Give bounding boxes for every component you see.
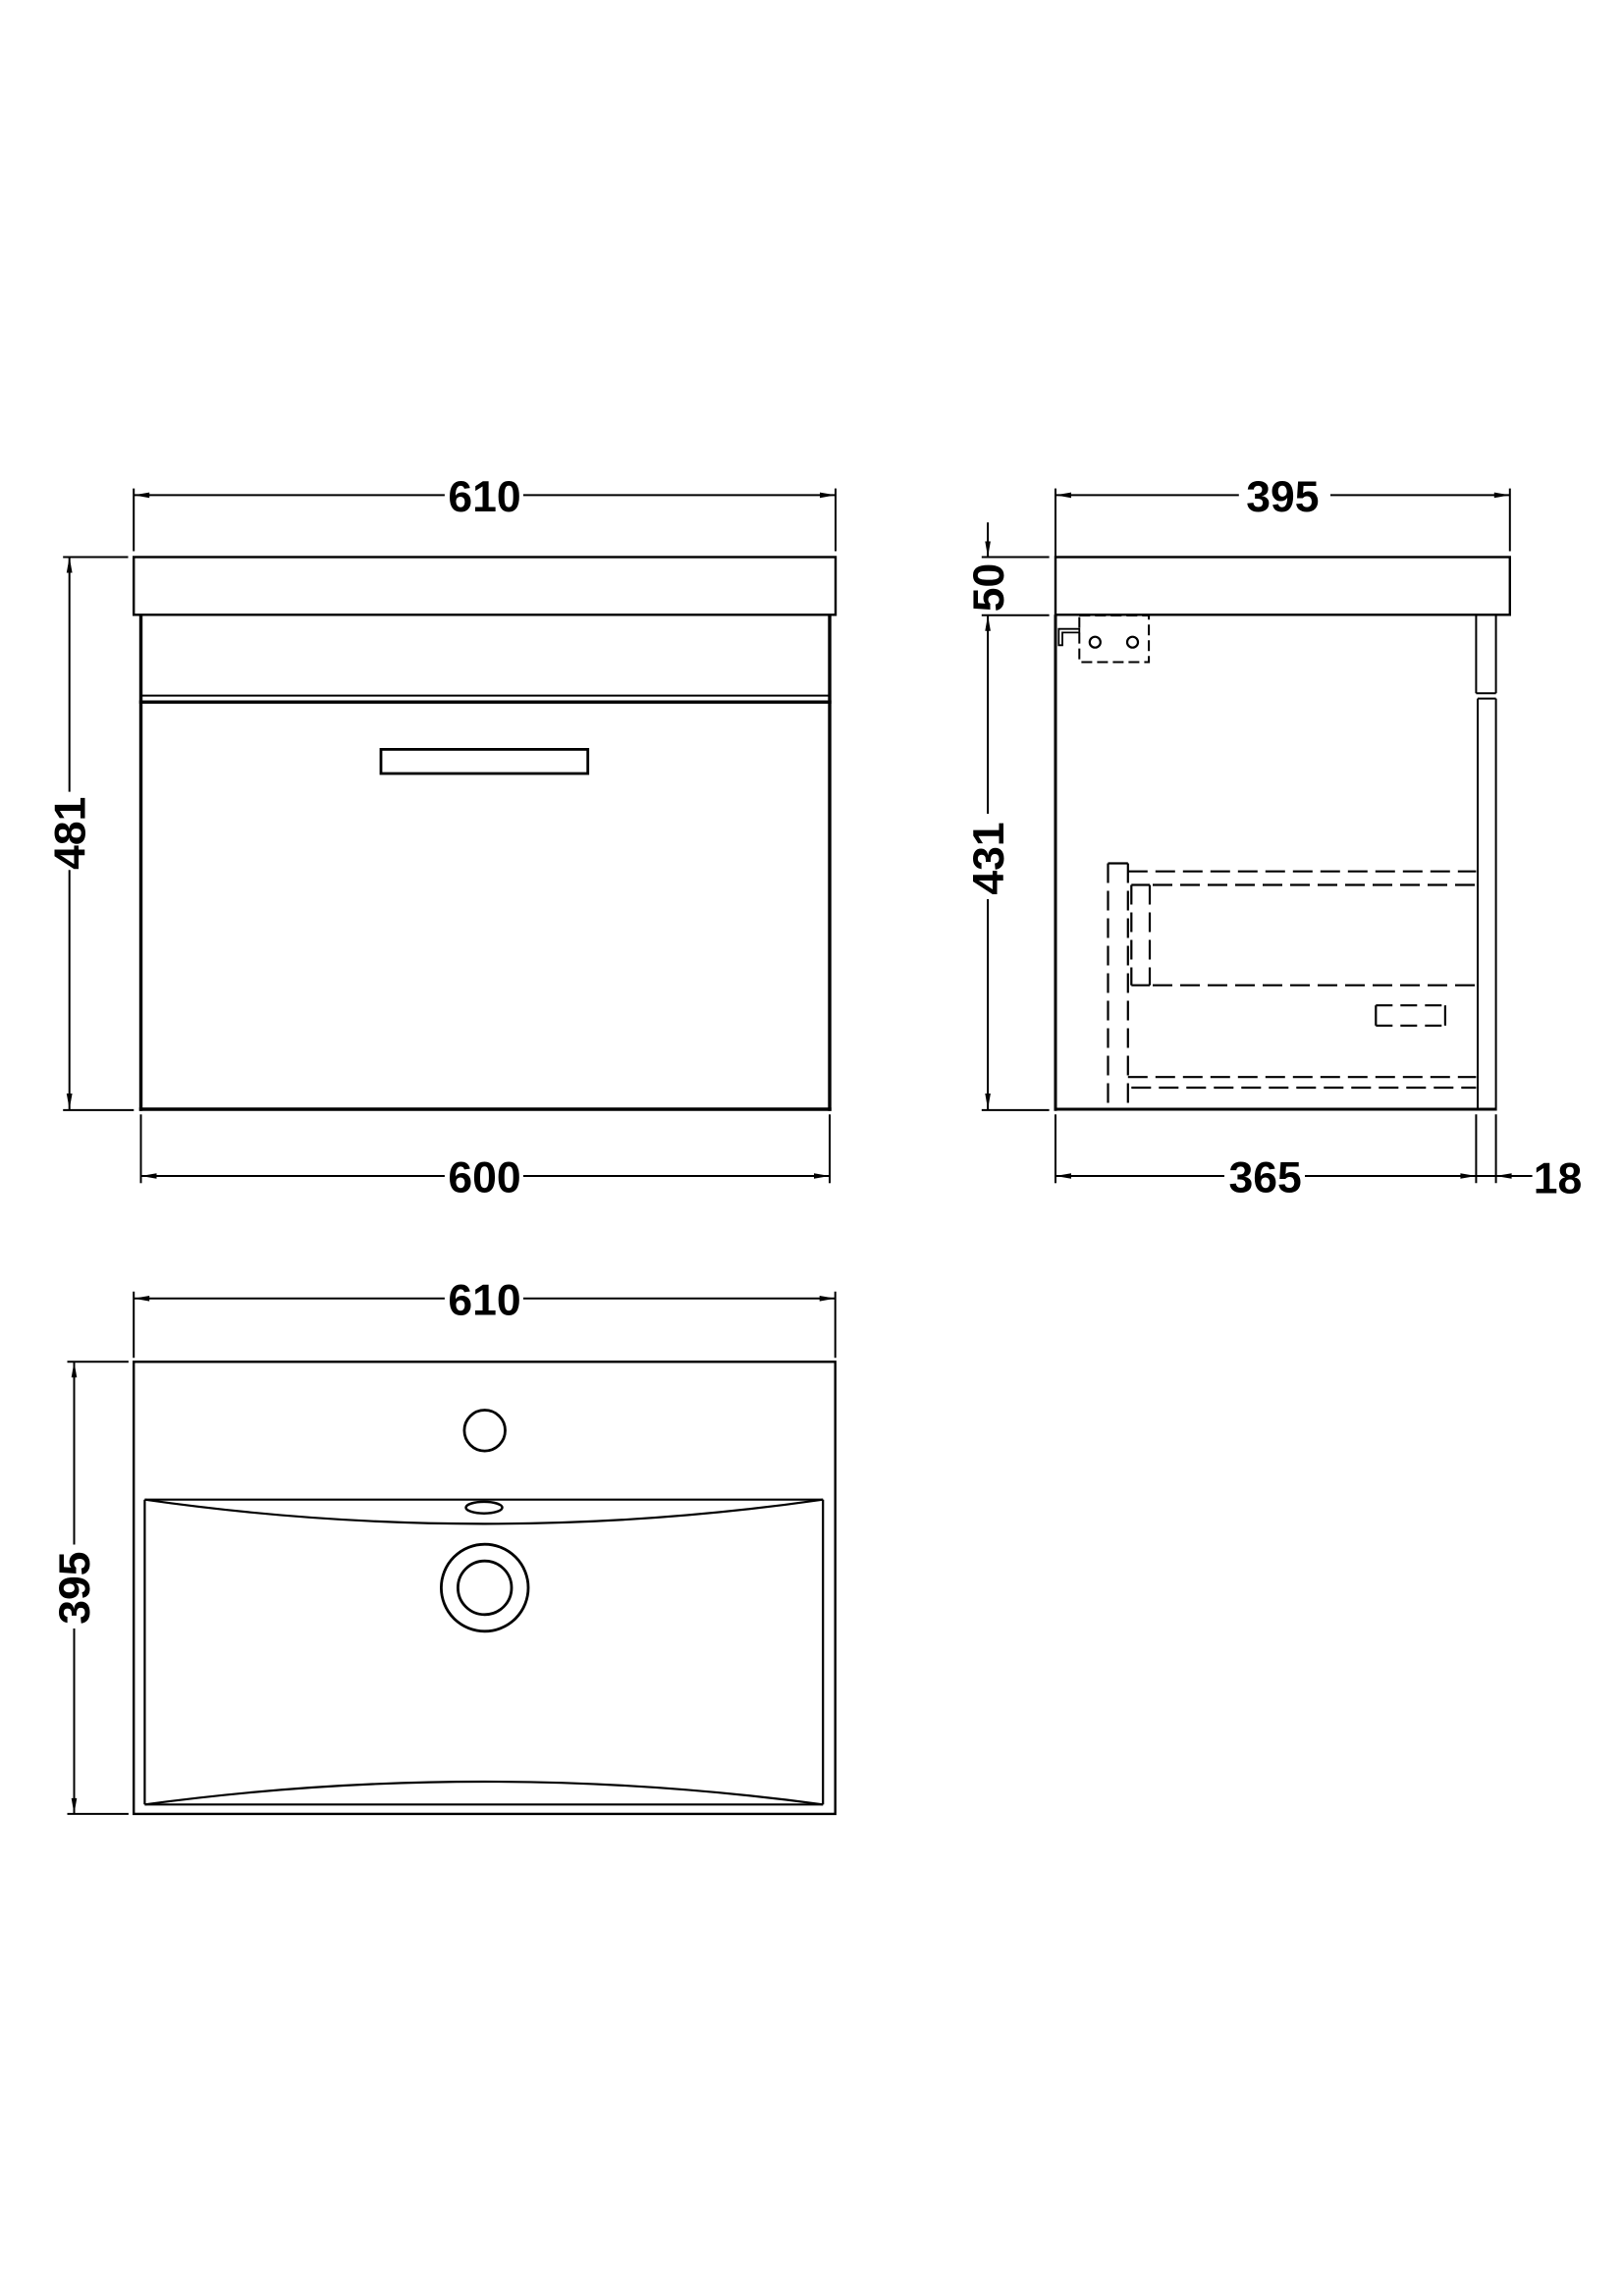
svg-text:431: 431 (965, 822, 1013, 894)
svg-text:50: 50 (965, 563, 1013, 613)
svg-text:395: 395 (51, 1551, 99, 1624)
svg-text:610: 610 (448, 1276, 520, 1324)
svg-text:395: 395 (1246, 473, 1319, 521)
svg-text:481: 481 (47, 797, 95, 870)
svg-text:600: 600 (448, 1154, 520, 1202)
svg-text:18: 18 (1534, 1155, 1583, 1203)
svg-text:610: 610 (448, 473, 520, 521)
svg-text:365: 365 (1228, 1154, 1301, 1202)
